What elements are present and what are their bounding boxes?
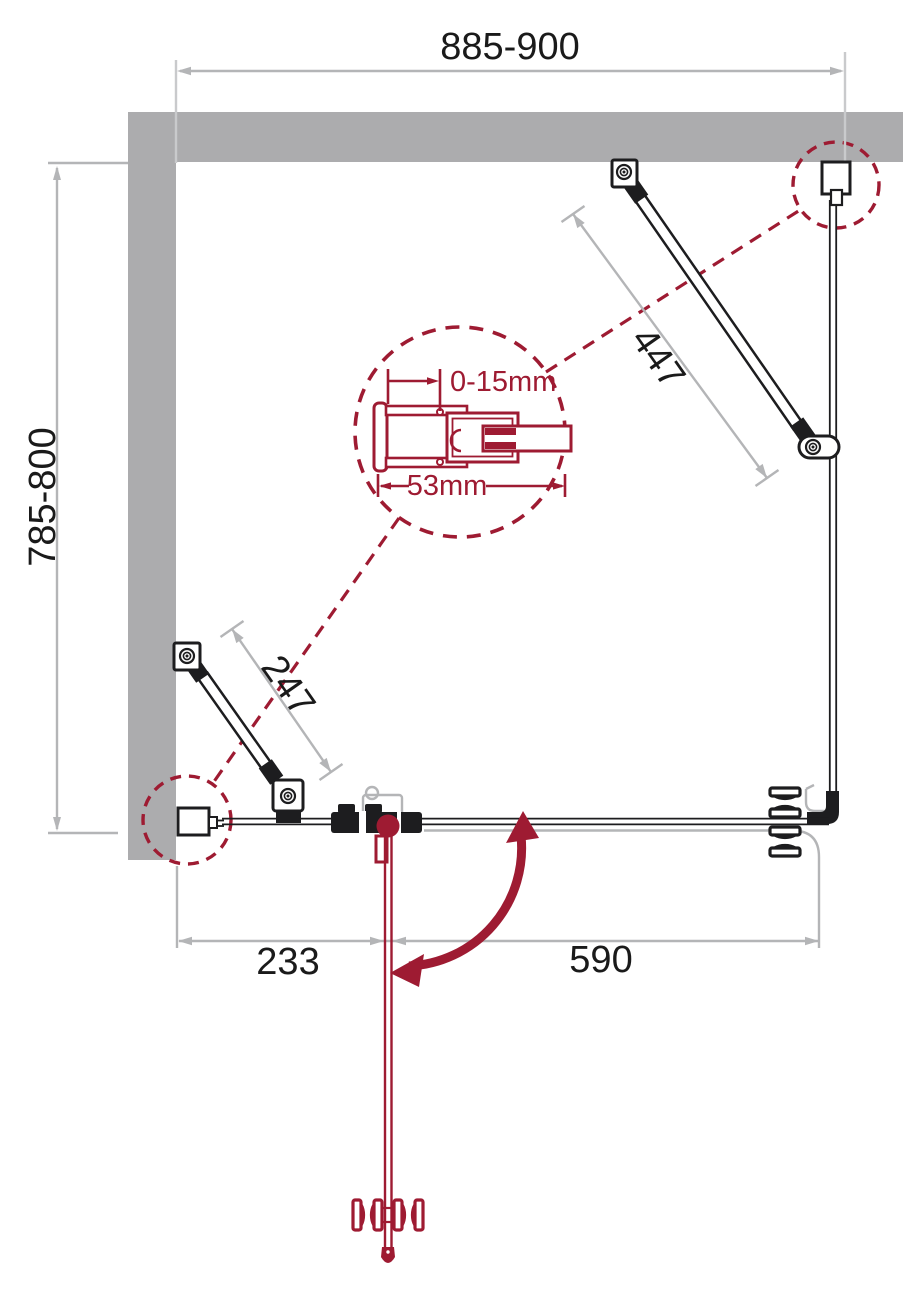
label-fixed-panel-width: 233 — [256, 941, 319, 983]
door-handle-closed — [770, 788, 800, 856]
detail-dimension-profile: 53mm — [378, 470, 565, 502]
label-door-width: 590 — [569, 939, 632, 981]
label-width-total: 885-900 — [440, 26, 579, 68]
side-panel — [806, 162, 850, 824]
diagram-page: 885-900 785-800 233 590 447 247 — [0, 0, 903, 1300]
dimension-bottom-widths: 233 590 — [177, 831, 819, 984]
dimension-left-depth: 785-800 — [22, 163, 128, 833]
door-open — [353, 815, 423, 1264]
door-bottom-tip — [381, 1247, 395, 1263]
label-profile-width: 53mm — [407, 470, 488, 502]
door-handle-open — [353, 1200, 423, 1230]
shower-enclosure-plan-diagram: 885-900 785-800 233 590 447 247 — [0, 0, 903, 1300]
dimension-support-bar-short: 247 — [221, 621, 343, 780]
wall-profile-top-right — [822, 162, 850, 205]
label-support-bar-long: 447 — [622, 320, 693, 396]
door-swing-arrow — [390, 811, 539, 987]
profile-cross-section — [374, 403, 571, 471]
label-wall-gap-adjustment: 0-15mm — [450, 366, 556, 398]
wall-profile-bottom-left — [178, 808, 224, 835]
leader-to-bottom-left-callout — [213, 518, 399, 783]
hinge-assembly — [331, 787, 422, 834]
corner-bracket-gray-hook — [806, 785, 828, 811]
hinge-pivot — [377, 815, 400, 838]
label-support-bar-short: 247 — [252, 648, 323, 724]
label-depth-total: 785-800 — [22, 427, 64, 566]
detail-dimension-gap: 0-15mm — [388, 366, 556, 411]
detail-view: 0-15mm 53mm — [355, 327, 571, 537]
wall-left — [128, 162, 176, 860]
wall-top — [128, 112, 903, 162]
